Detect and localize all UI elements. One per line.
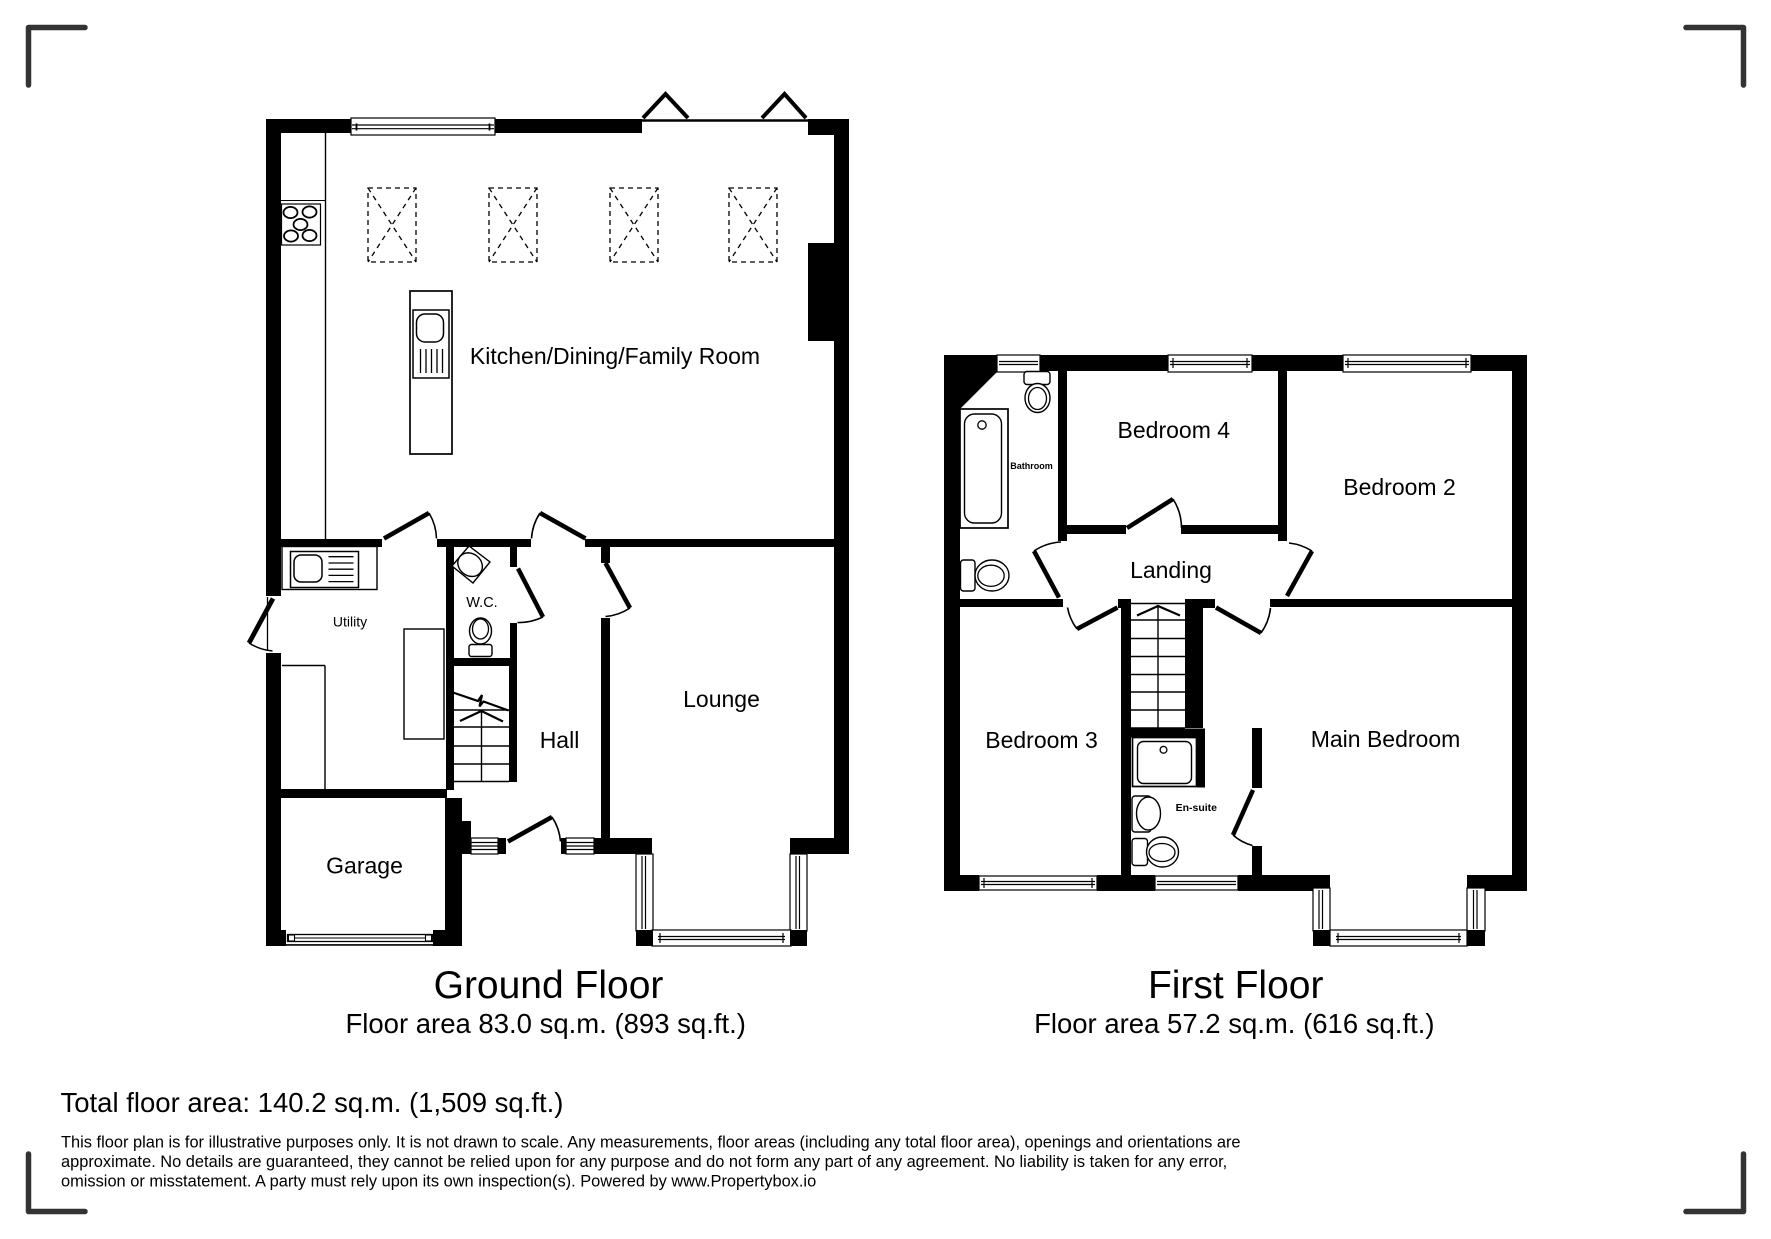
- svg-text:Main Bedroom: Main Bedroom: [1311, 726, 1461, 752]
- svg-text:En-suite: En-suite: [1176, 802, 1218, 814]
- svg-text:Total floor area: 140.2 sq.m.: Total floor area: 140.2 sq.m. (1,509 sq.…: [61, 1087, 564, 1118]
- svg-text:Ground Floor: Ground Floor: [434, 964, 664, 1007]
- svg-text:Floor area 83.0 sq.m. (893 sq.: Floor area 83.0 sq.m. (893 sq.ft.): [345, 1008, 745, 1039]
- svg-text:Bedroom 3: Bedroom 3: [985, 727, 1098, 753]
- svg-text:Lounge: Lounge: [683, 686, 760, 712]
- svg-text:Bedroom 2: Bedroom 2: [1343, 474, 1456, 500]
- svg-text:Bathroom: Bathroom: [1010, 461, 1053, 471]
- svg-text:Floor area 57.2 sq.m. (616 sq.: Floor area 57.2 sq.m. (616 sq.ft.): [1034, 1008, 1434, 1039]
- svg-text:Hall: Hall: [540, 727, 580, 753]
- svg-text:This floor plan is for illustr: This floor plan is for illustrative purp…: [61, 1134, 1241, 1152]
- svg-text:Bedroom 4: Bedroom 4: [1118, 417, 1231, 443]
- svg-text:approximate. No details are gu: approximate. No details are guaranteed, …: [61, 1153, 1227, 1171]
- svg-text:First Floor: First Floor: [1148, 964, 1324, 1007]
- svg-text:Utility: Utility: [333, 614, 367, 630]
- svg-text:Garage: Garage: [326, 853, 403, 879]
- svg-text:omission or misstatement. A pa: omission or misstatement. A party must r…: [61, 1173, 816, 1191]
- svg-text:W.C.: W.C.: [466, 595, 497, 611]
- svg-text:Kitchen/Dining/Family Room: Kitchen/Dining/Family Room: [470, 343, 760, 369]
- svg-text:Landing: Landing: [1130, 557, 1212, 583]
